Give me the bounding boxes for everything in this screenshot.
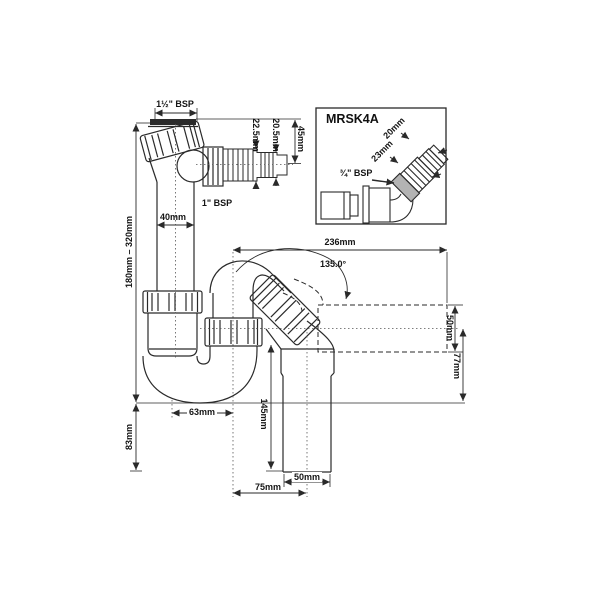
branch-nut	[203, 147, 223, 186]
dim-tail-length: 45mm	[296, 126, 306, 152]
dim-branch-thread: 1" BSP	[202, 198, 232, 208]
dim-outlet-offset: 75mm	[255, 482, 281, 492]
tee-body	[149, 150, 209, 182]
dim-seal-depth: 83mm	[124, 424, 134, 450]
trap-inlet-nut	[143, 291, 202, 313]
alt-horizontal-outlet-dashed	[283, 279, 447, 352]
u-bend	[143, 313, 257, 403]
dim-trap-offset: 63mm	[187, 407, 217, 417]
dim-outlet-drop: 77mm	[452, 353, 462, 379]
trap-diagram: 1½" BSP 22.5mm 20.5mm 45mm 1" BSP 40mm 1…	[0, 0, 600, 600]
main-assembly	[140, 119, 334, 472]
dim-outlet-length: 145mm	[259, 398, 269, 429]
dim-outlet-dia-bottom: 50mm	[292, 472, 322, 482]
dim-overall-reach: 236mm	[324, 237, 355, 247]
dim-outlet-angle: 135.0°	[320, 259, 346, 269]
dim-tail-step-large: 22.5mm	[251, 118, 261, 152]
dim-outlet-dia-side: 50mm	[445, 315, 455, 341]
dim-adjustable-height: 180mm – 320mm	[124, 216, 134, 288]
trap-diagram-linework	[0, 0, 600, 600]
outlet-elbow	[266, 321, 334, 376]
trap-outlet-nut	[205, 318, 262, 346]
swivel-nut	[249, 274, 321, 346]
hose-tail	[223, 149, 287, 181]
inset-product-code: MRSK4A	[326, 112, 379, 126]
dim-tail-step-small: 20.5mm	[271, 118, 281, 152]
dim-inlet-thread: 1½" BSP	[156, 99, 194, 109]
dim-pipe-diameter: 40mm	[160, 212, 186, 222]
inset-dim-thread: ¾" BSP	[340, 168, 373, 178]
